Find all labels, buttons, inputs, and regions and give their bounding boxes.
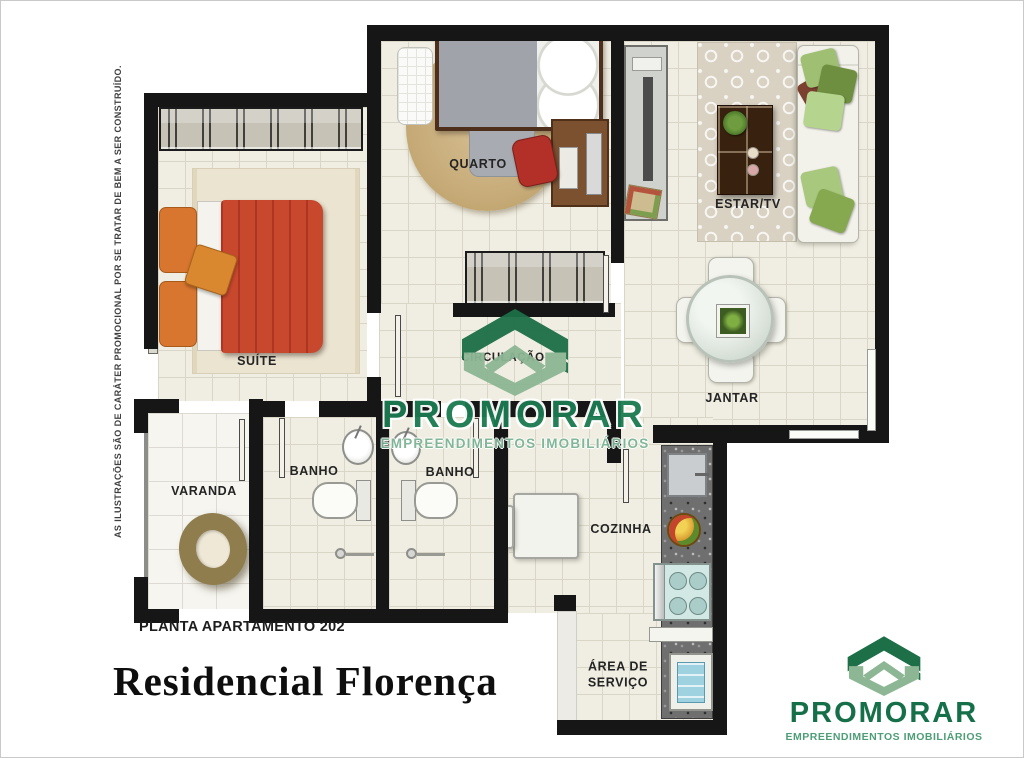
jantar-label: JANTAR xyxy=(705,391,758,405)
disclaimer-text: AS ILUSTRAÇÕES SÃO DE CARÁTER PROMOCIONA… xyxy=(113,86,129,538)
cozinha-label: COZINHA xyxy=(590,522,651,536)
wall xyxy=(144,93,381,107)
watermark-brand-name: PROMORAR xyxy=(369,396,661,434)
wall xyxy=(554,595,576,611)
wall xyxy=(367,25,381,313)
cozinha-door xyxy=(623,449,629,503)
banho-suite-shower-bar xyxy=(346,553,374,556)
laundry-tank xyxy=(669,653,713,711)
area-servico-line1: ÁREA DE xyxy=(588,659,648,675)
area-servico-line2: SERVIÇO xyxy=(588,675,648,691)
varanda-railing xyxy=(144,433,148,577)
wall xyxy=(611,25,624,263)
jantar-window xyxy=(789,430,859,439)
promorar-logo: PROMORAR EMPREENDIMENTOS IMOBILIÁRIOS xyxy=(783,635,985,743)
cup xyxy=(747,164,759,176)
logo-brand-name: PROMORAR xyxy=(783,699,985,728)
banho-social-label: BANHO xyxy=(426,465,475,479)
estar-window xyxy=(867,349,876,431)
quarto-label: QUARTO xyxy=(449,157,507,171)
varanda-door xyxy=(239,419,245,481)
wall xyxy=(144,93,158,349)
tv-shelf xyxy=(632,57,662,71)
banho-suite-label: BANHO xyxy=(290,464,339,478)
suite-wardrobe xyxy=(159,107,363,151)
watermark-logo: PROMORAR EMPREENDIMENTOS IMOBILIÁRIOS xyxy=(369,307,661,451)
suite-pillow xyxy=(159,281,197,347)
quarto-bed-pillows xyxy=(537,41,599,127)
estar-tv-label: ESTAR/TV xyxy=(715,197,781,211)
stove xyxy=(653,563,711,621)
quarto-desk xyxy=(551,119,609,207)
quarto-door xyxy=(603,255,609,313)
coffee-table-plant xyxy=(723,111,747,135)
logo-brand-tagline: EMPREENDIMENTOS IMOBILIÁRIOS xyxy=(783,731,985,743)
stove-handle xyxy=(655,565,665,619)
quarto-mattress xyxy=(397,47,433,125)
table-plant xyxy=(717,305,749,337)
banho-social-shower-bar xyxy=(417,553,445,556)
kitchen-table xyxy=(513,493,579,559)
floorplan-page: AS ILUSTRAÇÕES SÃO DE CARÁTER PROMOCIONA… xyxy=(0,0,1024,758)
plan-number-label: PLANTA APARTAMENTO 202 xyxy=(139,619,345,635)
fruit-bowl xyxy=(667,513,701,547)
keyboard xyxy=(559,147,578,189)
suite-bed xyxy=(221,200,323,353)
kitchen-sink xyxy=(667,453,707,497)
banho-social-shower-knob xyxy=(406,548,417,559)
quarto-wardrobe xyxy=(465,251,605,305)
varanda-label: VARANDA xyxy=(171,484,237,498)
banho-social-toilet xyxy=(414,482,458,519)
sofa-pillow xyxy=(803,91,846,132)
tv xyxy=(643,77,653,181)
watermark-brand-tagline: EMPREENDIMENTOS IMOBILIÁRIOS xyxy=(369,436,661,451)
wall xyxy=(376,25,889,41)
promorar-house-m-icon xyxy=(845,635,923,696)
computer-tower xyxy=(586,133,602,195)
area-servico-label: ÁREA DE SERVIÇO xyxy=(588,659,648,690)
banho-suite-toilet xyxy=(312,482,358,519)
wall xyxy=(875,25,889,439)
wall xyxy=(134,399,148,433)
wall xyxy=(557,720,727,735)
banho-suite-door xyxy=(279,418,285,478)
page-title: Residencial Florença xyxy=(113,657,498,705)
banho-suite-shower-knob xyxy=(335,548,346,559)
suite-label: SUÍTE xyxy=(237,354,277,368)
servico-side-column xyxy=(557,611,577,722)
banho-suite-toilet-tank xyxy=(356,480,371,521)
game-board xyxy=(624,184,663,219)
promorar-house-m-icon xyxy=(458,307,572,396)
quarto-bed xyxy=(435,37,603,131)
cup xyxy=(747,147,759,159)
wall xyxy=(249,399,263,623)
service-shelf xyxy=(649,627,713,642)
wall xyxy=(713,427,727,735)
